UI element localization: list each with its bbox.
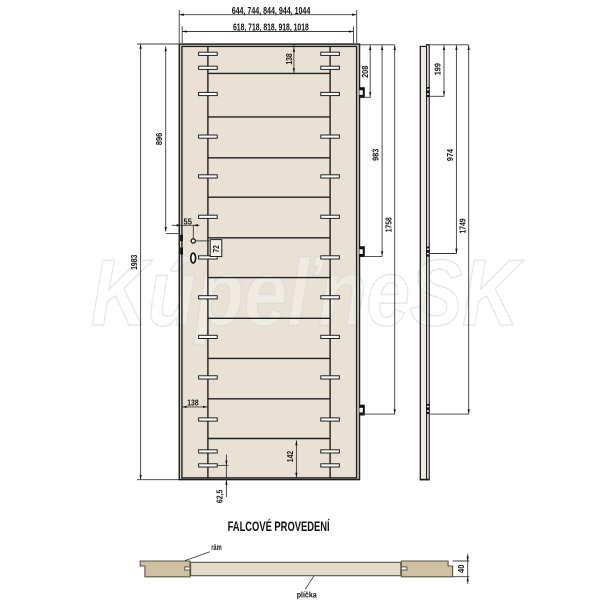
svg-text:983: 983 <box>372 148 381 161</box>
svg-text:72: 72 <box>212 245 221 253</box>
svg-text:896: 896 <box>155 132 164 145</box>
svg-text:plíčka: plíčka <box>297 589 317 599</box>
svg-text:1749: 1749 <box>458 218 467 233</box>
svg-text:208: 208 <box>361 65 370 78</box>
svg-text:974: 974 <box>446 149 455 162</box>
svg-text:40: 40 <box>457 564 466 573</box>
svg-text:1758: 1758 <box>384 217 393 232</box>
svg-text:618, 718, 818, 918, 1018: 618, 718, 818, 918, 1018 <box>233 22 309 33</box>
svg-text:FALCOVÉ PROVEDENÍ: FALCOVÉ PROVEDENÍ <box>228 518 331 534</box>
svg-text:rám: rám <box>211 542 222 552</box>
svg-text:142: 142 <box>286 451 295 463</box>
svg-text:62,5: 62,5 <box>215 489 224 503</box>
svg-text:KúpeľneSK: KúpeľneSK <box>91 240 524 345</box>
svg-text:644, 744, 844, 944, 1044: 644, 744, 844, 944, 1044 <box>232 6 311 17</box>
svg-text:138: 138 <box>187 398 199 407</box>
svg-text:199: 199 <box>434 63 443 76</box>
svg-text:55: 55 <box>184 217 193 226</box>
svg-text:138: 138 <box>285 53 294 65</box>
svg-text:1983: 1983 <box>130 254 139 270</box>
